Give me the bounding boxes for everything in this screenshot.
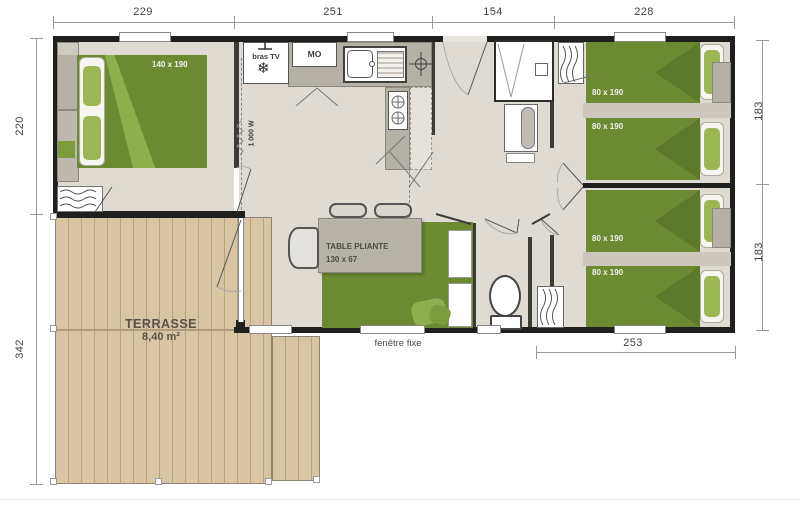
door-arc [558, 188, 563, 210]
fixed-window-label: fenêtre fixe [348, 338, 448, 349]
angled-wall [436, 214, 471, 224]
floor-plan: 140 x 190 bras TV ❄ MO 1 000 W TABLE PLI… [0, 0, 800, 506]
angled-wall [532, 214, 550, 224]
dim-tick [734, 16, 735, 29]
dim-tick [536, 346, 537, 359]
bedroomB-door-leaf [563, 187, 583, 210]
dim-tick [53, 16, 54, 29]
dim-right-1: 183 [753, 96, 765, 126]
terrace-area-label: 8,40 m² [101, 331, 221, 343]
dim-top-4: 228 [614, 6, 674, 18]
dim-line-bottom [536, 352, 736, 353]
counter-door-line [376, 136, 405, 164]
kitchen-door-lines [390, 152, 433, 187]
terrace-door-leaf [217, 220, 241, 287]
terrace-label: TERRASSE [101, 317, 221, 331]
hall-door-leaf [541, 219, 559, 235]
dim-tick [756, 40, 769, 41]
dim-right-2: 183 [753, 237, 765, 267]
ceiling-light-cross [409, 52, 433, 76]
hanging-clothes-lines [541, 289, 558, 325]
detail-overlay [0, 0, 800, 506]
bedroomA-door-leaf [563, 163, 583, 185]
hanging-clothes-lines [561, 46, 578, 82]
dim-line-top [53, 22, 735, 23]
heater-icon [237, 121, 243, 155]
master-door-leaf [237, 169, 251, 212]
dim-tick [30, 214, 43, 215]
dim-top-2: 251 [303, 6, 363, 18]
dim-tick [234, 16, 235, 29]
cupboard-door-lines [296, 88, 338, 106]
dim-tick [735, 346, 736, 359]
bench-lid-line [95, 187, 112, 212]
dim-top-3: 154 [463, 6, 523, 18]
wardrobe-door-line [560, 75, 594, 84]
dim-bottom: 253 [603, 337, 663, 349]
dim-tick [756, 330, 769, 331]
tv-bracket-icon [258, 42, 272, 49]
entrance-door-leaf [468, 42, 487, 95]
dim-left-1: 220 [14, 111, 26, 141]
shower-fold-lines [498, 44, 524, 97]
dim-line-left [36, 38, 37, 485]
wc-door-leaf [485, 219, 519, 233]
door-arc [217, 287, 241, 292]
dim-tick [30, 38, 43, 39]
bench-squiggle-lines [60, 190, 96, 208]
door-arc [485, 220, 517, 234]
dim-tick [432, 16, 433, 29]
door-arc [237, 166, 251, 169]
door-arc [443, 42, 468, 95]
dim-left-2: 342 [14, 334, 26, 364]
page-edge-line [0, 499, 800, 500]
door-arc [558, 163, 563, 183]
dim-top-1: 229 [113, 6, 173, 18]
dim-tick [30, 484, 43, 485]
dim-tick [756, 184, 769, 185]
dim-line-right [762, 40, 763, 331]
dim-tick [554, 16, 555, 29]
